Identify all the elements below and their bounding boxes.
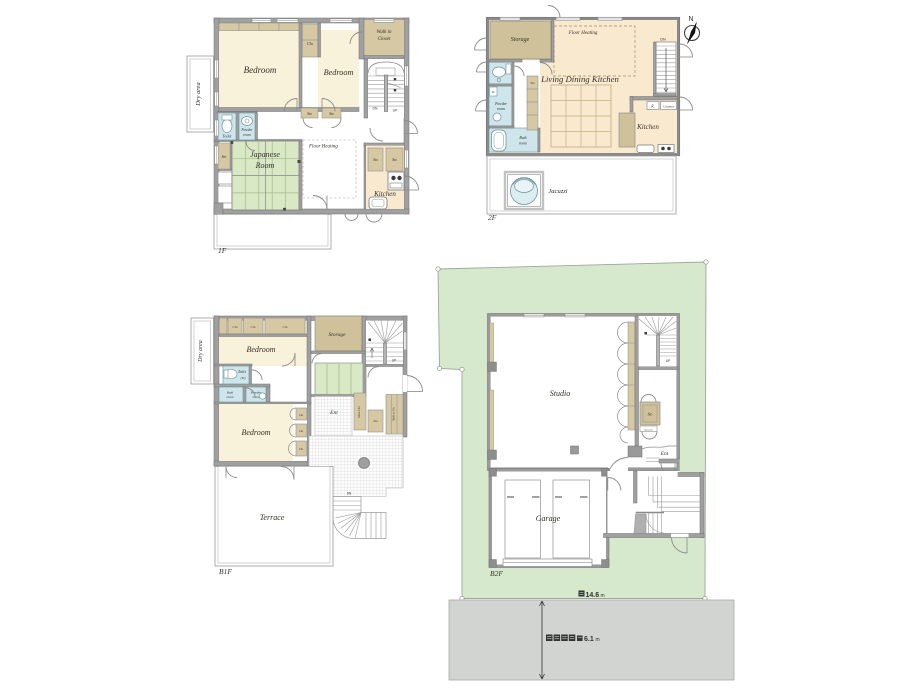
svg-text:Room: Room bbox=[255, 161, 275, 170]
svg-text:Shoe Clo: Shoe Clo bbox=[644, 428, 654, 431]
svg-text:2F: 2F bbox=[488, 213, 497, 222]
svg-text:N: N bbox=[688, 16, 693, 23]
svg-text:m: m bbox=[596, 637, 600, 643]
svg-text:Closet: Closet bbox=[378, 37, 391, 42]
svg-text:Toilet: Toilet bbox=[223, 134, 233, 139]
svg-text:Garage: Garage bbox=[536, 514, 561, 523]
svg-text:14.6: 14.6 bbox=[586, 592, 600, 599]
svg-text:Sto: Sto bbox=[648, 413, 653, 417]
svg-text:B2F: B2F bbox=[490, 569, 503, 578]
svg-text:Kitchen: Kitchen bbox=[636, 123, 659, 131]
svg-text:Clo: Clo bbox=[299, 429, 304, 433]
svg-text:UP: UP bbox=[392, 359, 396, 363]
svg-text:Sto: Sto bbox=[329, 112, 334, 116]
svg-text:Bedroom: Bedroom bbox=[246, 345, 275, 354]
svg-text:(W): (W) bbox=[241, 376, 246, 380]
svg-text:Bath: Bath bbox=[519, 136, 526, 140]
svg-text:UP: UP bbox=[393, 109, 398, 113]
svg-text:Walk in: Walk in bbox=[377, 30, 392, 35]
svg-text:Floor Heating: Floor Heating bbox=[308, 145, 338, 150]
svg-text:Counter: Counter bbox=[663, 105, 675, 109]
svg-text:Bedroom: Bedroom bbox=[324, 68, 354, 77]
svg-text:Ent: Ent bbox=[329, 410, 338, 416]
svg-text:Bath: Bath bbox=[227, 391, 234, 395]
svg-text:Shoe Clo: Shoe Clo bbox=[357, 406, 361, 418]
svg-text:Ent: Ent bbox=[660, 451, 669, 457]
svg-text:Toilet: Toilet bbox=[238, 370, 247, 374]
svg-text:room: room bbox=[519, 142, 527, 146]
svg-text:Powder: Powder bbox=[240, 128, 253, 132]
svg-text:Bedroom: Bedroom bbox=[244, 65, 277, 75]
svg-text:DN: DN bbox=[660, 38, 666, 42]
svg-text:room: room bbox=[497, 107, 505, 111]
svg-text:Walk in Clo: Walk in Clo bbox=[392, 407, 396, 421]
svg-text:Floor Heating: Floor Heating bbox=[568, 31, 598, 36]
svg-text:Storage: Storage bbox=[328, 332, 346, 338]
svg-text:B1F: B1F bbox=[219, 567, 232, 576]
svg-text:Clo: Clo bbox=[283, 325, 288, 329]
svg-text:room: room bbox=[252, 395, 260, 399]
svg-text:Powder: Powder bbox=[494, 102, 507, 106]
svg-text:Clo: Clo bbox=[299, 447, 304, 451]
svg-text:UP: UP bbox=[666, 359, 670, 363]
svg-text:DN: DN bbox=[373, 107, 378, 111]
svg-text:Dry area: Dry area bbox=[198, 340, 204, 363]
svg-text:R.: R. bbox=[650, 104, 654, 109]
svg-text:Sto: Sto bbox=[530, 81, 534, 85]
svg-text:Clo: Clo bbox=[307, 41, 314, 46]
svg-text:Sto: Sto bbox=[392, 158, 397, 162]
svg-text:1F: 1F bbox=[218, 246, 227, 255]
svg-text:Clo: Clo bbox=[251, 325, 256, 329]
svg-text:Clo: Clo bbox=[299, 413, 304, 417]
svg-text:room: room bbox=[226, 395, 234, 399]
svg-text:Dry area: Dry area bbox=[195, 82, 202, 106]
svg-text:Clo: Clo bbox=[233, 325, 238, 329]
svg-text:Studio: Studio bbox=[550, 389, 570, 398]
svg-text:Sto: Sto bbox=[373, 158, 378, 162]
svg-text:Terrace: Terrace bbox=[260, 513, 285, 522]
svg-text:Sto: Sto bbox=[307, 112, 312, 116]
svg-text:Sto: Sto bbox=[222, 155, 227, 159]
svg-text:Storage: Storage bbox=[511, 37, 530, 43]
svg-text:DN: DN bbox=[347, 492, 352, 496]
svg-text:6.1: 6.1 bbox=[584, 636, 594, 643]
svg-text:Japanese: Japanese bbox=[250, 150, 280, 159]
svg-text:m: m bbox=[601, 593, 605, 599]
svg-text:Jacuzzi: Jacuzzi bbox=[548, 188, 567, 195]
svg-text:room: room bbox=[243, 133, 251, 137]
svg-text:Bedroom: Bedroom bbox=[241, 428, 270, 437]
svg-text:Sto: Sto bbox=[373, 419, 378, 423]
